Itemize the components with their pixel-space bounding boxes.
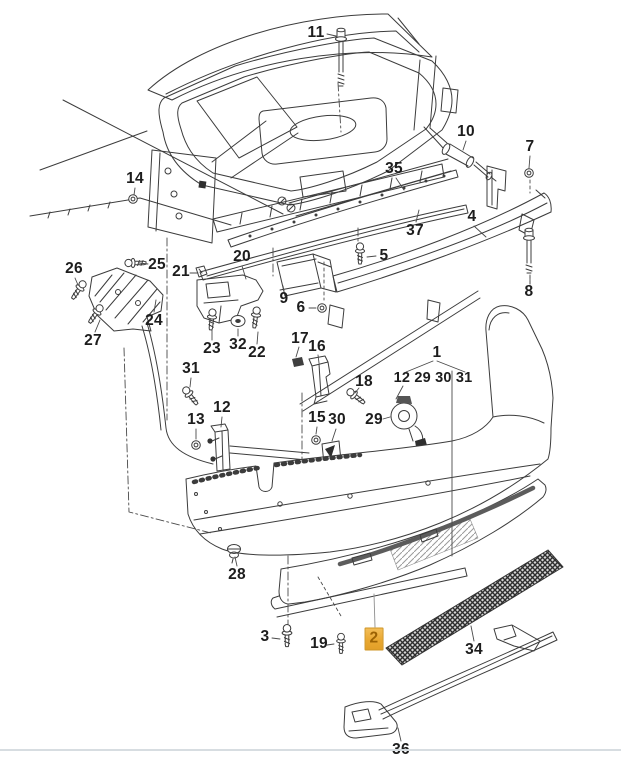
parts-diagram-page: 1114107354375826252120962427233222171611… bbox=[0, 0, 621, 761]
impact-strip-37 bbox=[200, 205, 468, 280]
part-callout-3[interactable]: 3 bbox=[261, 628, 270, 646]
leader-line-14 bbox=[134, 188, 135, 195]
part-callout-34[interactable]: 34 bbox=[465, 641, 483, 659]
leader-line-15 bbox=[316, 427, 317, 434]
leader-line-34 bbox=[471, 626, 474, 641]
part-callout-26[interactable]: 26 bbox=[65, 260, 83, 278]
screw-19 bbox=[337, 633, 346, 653]
leader-line-5 bbox=[367, 256, 376, 257]
part-callout-11[interactable]: 11 bbox=[308, 24, 325, 42]
part-callout-31[interactable]: 31 bbox=[182, 360, 200, 378]
part-callout-29[interactable]: 29 bbox=[365, 411, 383, 429]
bolt-8 bbox=[524, 228, 535, 273]
screw-3 bbox=[282, 624, 292, 646]
screw-26 bbox=[69, 279, 89, 302]
part-callout-20[interactable]: 20 bbox=[233, 248, 251, 266]
leader-line-17 bbox=[296, 347, 299, 357]
leader-line-2 bbox=[374, 594, 375, 627]
part-callout-8[interactable]: 8 bbox=[525, 283, 534, 301]
clip-28 bbox=[228, 545, 241, 564]
part-callout-13[interactable]: 13 bbox=[187, 411, 205, 429]
grommet-32 bbox=[231, 316, 245, 327]
part-callout-23[interactable]: 23 bbox=[203, 340, 221, 358]
leader-line-12 bbox=[221, 417, 222, 427]
leader-line-31 bbox=[190, 378, 191, 387]
part-callout-28[interactable]: 28 bbox=[228, 566, 246, 584]
part-callout-1[interactable]: 1 bbox=[433, 344, 442, 362]
leader-line-22 bbox=[257, 332, 258, 344]
nut-14 bbox=[129, 195, 138, 204]
part-callout-30[interactable]: 30 bbox=[328, 411, 346, 429]
screw-22 bbox=[250, 306, 262, 328]
leader-line-29 bbox=[383, 417, 390, 419]
leader-line-7 bbox=[529, 156, 530, 168]
part-callout-35[interactable]: 35 bbox=[385, 160, 403, 178]
screw-31 bbox=[180, 385, 200, 407]
part-callout-22[interactable]: 22 bbox=[248, 344, 266, 362]
part-callout-6[interactable]: 6 bbox=[297, 299, 306, 317]
bracket-10 bbox=[441, 142, 506, 209]
leader-line-3 bbox=[272, 638, 280, 639]
leader-line-10 bbox=[463, 141, 466, 150]
part-callout-15[interactable]: 15 bbox=[308, 409, 326, 427]
leader-line-24 bbox=[154, 300, 156, 312]
part-callout-21[interactable]: 21 bbox=[172, 263, 190, 281]
nut-13 bbox=[192, 441, 201, 450]
leader-line-16 bbox=[318, 355, 319, 363]
part-callout-2[interactable]: 2 bbox=[365, 628, 384, 651]
bumper-beam-4 bbox=[333, 190, 551, 292]
part-callout-16[interactable]: 16 bbox=[308, 338, 326, 356]
part-group-callout[interactable]: 12 29 30 31 bbox=[394, 370, 473, 386]
part-callout-10[interactable]: 10 bbox=[457, 123, 475, 141]
part-callout-7[interactable]: 7 bbox=[526, 138, 535, 156]
nut-15 bbox=[312, 436, 321, 445]
part-callout-27[interactable]: 27 bbox=[84, 332, 102, 350]
screw-27 bbox=[86, 303, 106, 326]
leader-line-25 bbox=[139, 263, 148, 264]
leader-line-36 bbox=[398, 728, 401, 741]
part-callout-25[interactable]: 25 bbox=[148, 256, 166, 274]
car-body-sketch bbox=[30, 14, 458, 243]
nut-7 bbox=[525, 169, 534, 178]
part-callout-4[interactable]: 4 bbox=[468, 208, 477, 226]
leader-line-26 bbox=[75, 278, 78, 285]
part-callout-12[interactable]: 12 bbox=[213, 399, 231, 417]
leader-line-28 bbox=[235, 557, 237, 566]
leader-line-11 bbox=[327, 34, 336, 36]
screw-5 bbox=[355, 243, 364, 264]
part-callout-19[interactable]: 19 bbox=[310, 635, 328, 653]
part-callout-18[interactable]: 18 bbox=[355, 373, 373, 391]
part-callout-24[interactable]: 24 bbox=[145, 312, 163, 330]
leader-line-27 bbox=[95, 320, 100, 332]
leader-line-30 bbox=[332, 429, 336, 441]
clip-17 bbox=[292, 357, 304, 367]
sensor-29 bbox=[391, 396, 428, 452]
nut-6 bbox=[318, 304, 327, 313]
part-callout-14[interactable]: 14 bbox=[126, 170, 144, 188]
bolt-11 bbox=[336, 28, 347, 86]
part-callout-9[interactable]: 9 bbox=[280, 290, 289, 308]
part-callout-17[interactable]: 17 bbox=[291, 330, 309, 348]
part-callout-37[interactable]: 37 bbox=[406, 222, 424, 240]
part-callout-32[interactable]: 32 bbox=[229, 336, 247, 354]
part-callout-5[interactable]: 5 bbox=[380, 247, 389, 265]
bottom-rule bbox=[0, 749, 621, 751]
